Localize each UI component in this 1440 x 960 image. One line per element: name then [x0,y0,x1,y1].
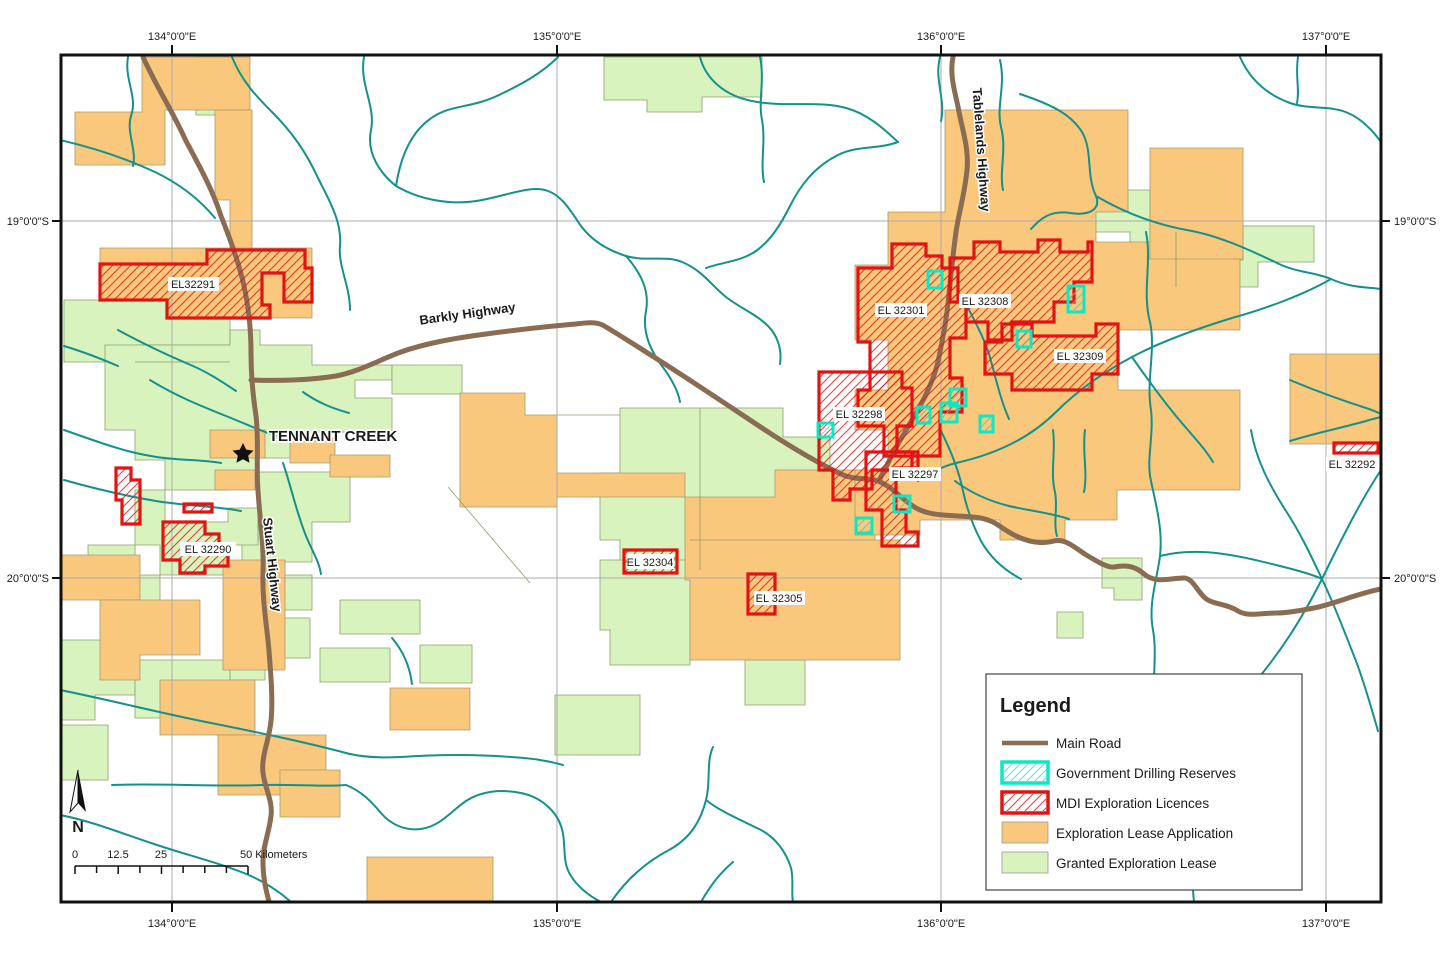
lat-label-right-20: 20°0'0"S [1394,573,1436,585]
lon-label-bottom-134: 134°0'0"E [148,918,196,930]
label-el32304: EL 32304 [627,557,674,569]
lon-label-top-137: 137°0'0"E [1302,31,1350,43]
lat-label-right-19: 19°0'0"S [1394,216,1436,228]
lon-label-top-136: 136°0'0"E [917,31,965,43]
label-el32298: EL 32298 [836,409,883,421]
lat-label-left-20: 20°0'0"S [7,573,49,585]
licence-polygon-small-dash [184,504,212,512]
scale-label-0: 0 [72,849,78,861]
lat-label-left-19: 19°0'0"S [7,216,49,228]
legend-label-lease-application: Exploration Lease Application [1056,826,1233,841]
legend-label-mdi-licences: MDI Exploration Licences [1056,796,1209,811]
legend-label-granted-lease: Granted Exploration Lease [1056,856,1217,871]
label-el32309: EL 32309 [1057,351,1104,363]
lon-label-top-134: 134°0'0"E [148,31,196,43]
scale-label-50km: 50 Kilometers [240,849,308,861]
legend-swatch-granted-lease [1002,852,1048,873]
label-el32292: EL 32292 [1329,459,1376,471]
legend-title: Legend [1000,695,1071,717]
label-el32290: EL 32290 [185,544,232,556]
scale-label-12-5: 12.5 [107,849,128,861]
label-el32308: EL 32308 [962,296,1009,308]
north-arrow-label: N [72,819,84,836]
legend-label-drilling-reserves: Government Drilling Reserves [1056,766,1236,781]
legend-label-main-road: Main Road [1056,736,1121,751]
map-page: TENNANT CREEK Barkly Highway Stuart High… [0,0,1440,960]
label-el32291: EL32291 [171,279,215,291]
label-el32305: EL 32305 [756,593,803,605]
legend: Legend Main Road Government Drilling Res… [986,674,1302,890]
lon-label-bottom-137: 137°0'0"E [1302,918,1350,930]
lon-label-bottom-135: 135°0'0"E [533,918,581,930]
licence-polygon-el32292 [1334,443,1378,453]
label-el32301: EL 32301 [878,305,925,317]
lon-label-bottom-136: 136°0'0"E [917,918,965,930]
lon-label-top-135: 135°0'0"E [533,31,581,43]
map-canvas: TENNANT CREEK Barkly Highway Stuart High… [0,0,1440,960]
scale-label-25: 25 [155,849,167,861]
label-el32297: EL 32297 [892,469,939,481]
tennant-creek-label: TENNANT CREEK [269,428,398,445]
legend-swatch-lease-application [1002,822,1048,843]
